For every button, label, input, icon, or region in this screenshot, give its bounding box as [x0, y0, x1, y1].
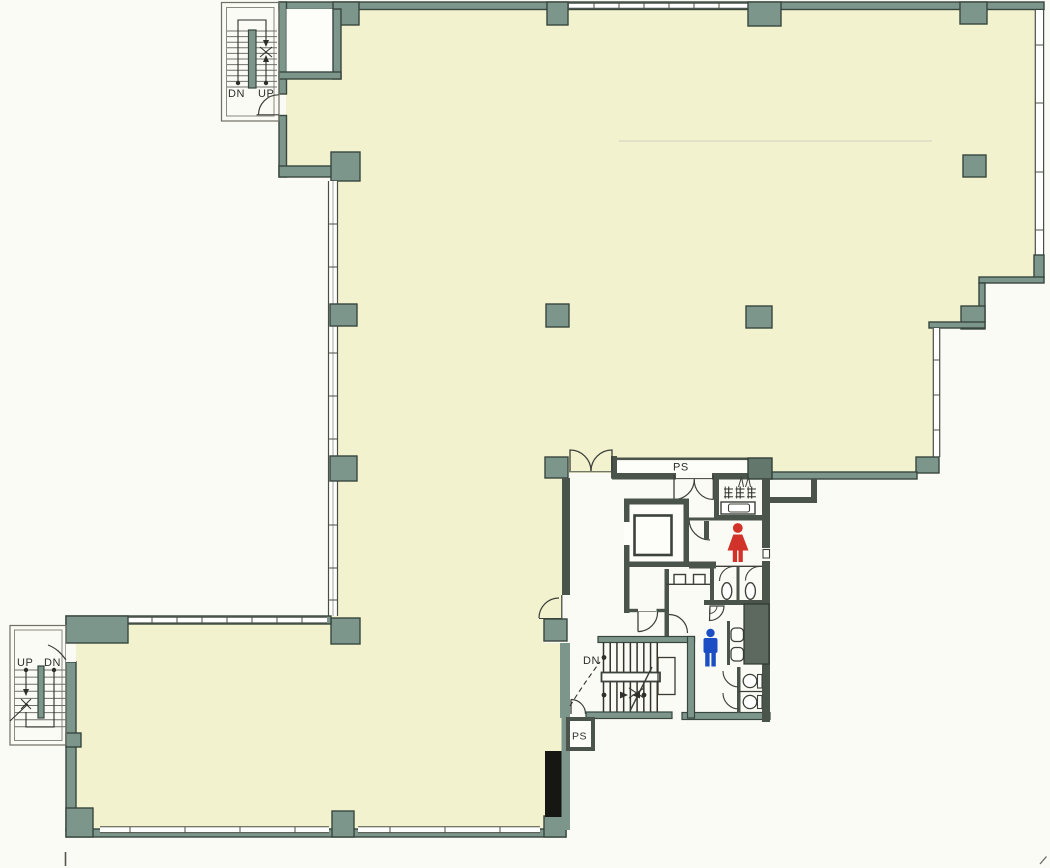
svg-text:UP: UP: [258, 88, 274, 100]
svg-text:UP: UP: [17, 657, 33, 669]
svg-text:PS: PS: [673, 462, 689, 474]
svg-text:PS: PS: [572, 731, 587, 743]
svg-text:DN: DN: [583, 655, 600, 667]
svg-text:DN: DN: [44, 657, 61, 669]
svg-text:DN: DN: [228, 88, 245, 100]
